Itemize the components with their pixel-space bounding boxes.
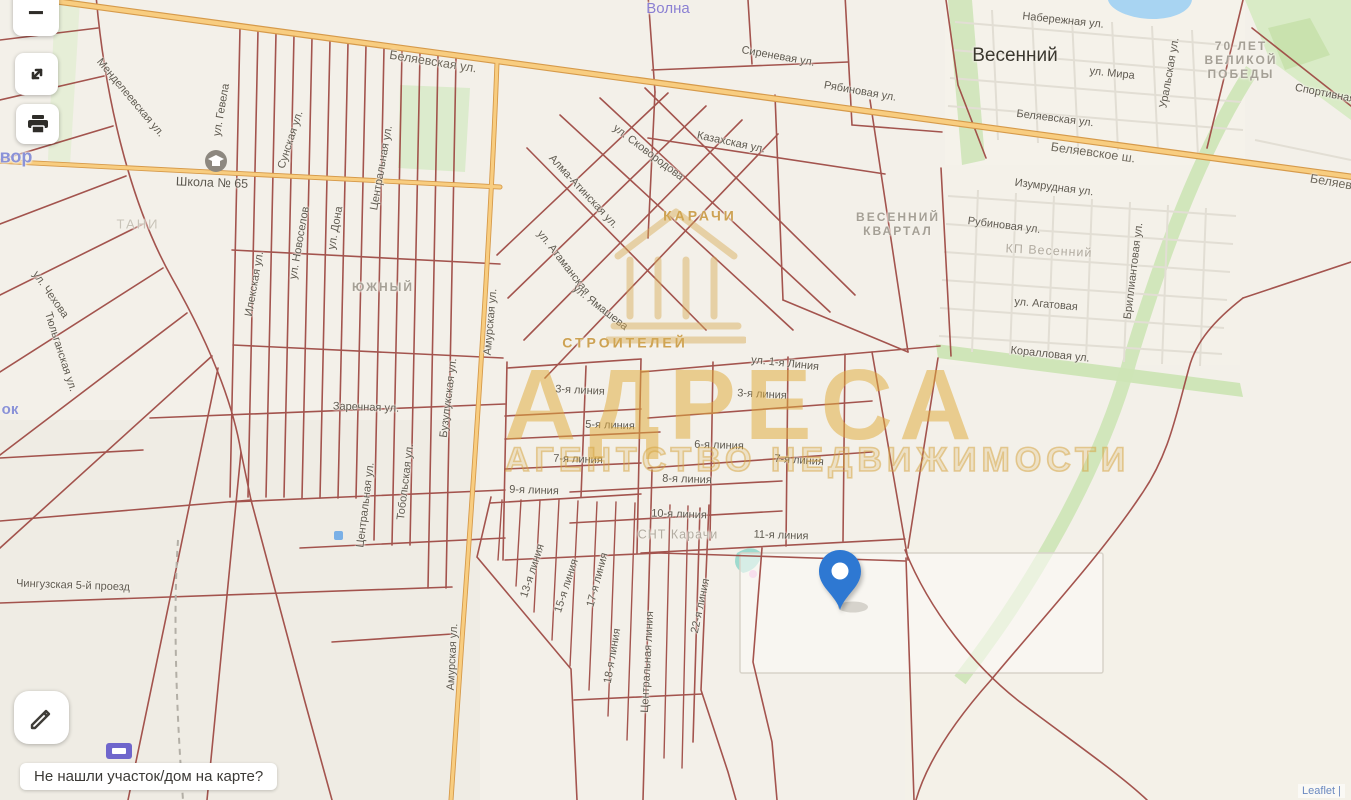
printer-icon <box>27 114 49 134</box>
area-fills <box>0 0 1351 800</box>
not-found-hint-text: Не нашли участок/дом на карте? <box>34 768 263 785</box>
fullscreen-button[interactable] <box>15 53 58 95</box>
edit-button[interactable] <box>14 691 69 744</box>
print-button[interactable] <box>16 104 59 144</box>
zoom-out-button[interactable]: − <box>13 0 59 36</box>
fullscreen-arrows-icon <box>26 63 48 85</box>
not-found-hint-bar[interactable]: Не нашли участок/дом на карте? <box>20 763 277 790</box>
pencil-icon <box>29 705 55 731</box>
map-graphics <box>0 0 1351 800</box>
map-pin[interactable] <box>817 549 863 616</box>
zoom-out-label: − <box>28 0 44 29</box>
map-attribution[interactable]: Leaflet | <box>1298 784 1345 798</box>
road-shield-icon <box>106 743 132 759</box>
map-view[interactable]: Беляевская ул.ВолнаСиреневая ул.Рябинова… <box>0 0 1351 800</box>
